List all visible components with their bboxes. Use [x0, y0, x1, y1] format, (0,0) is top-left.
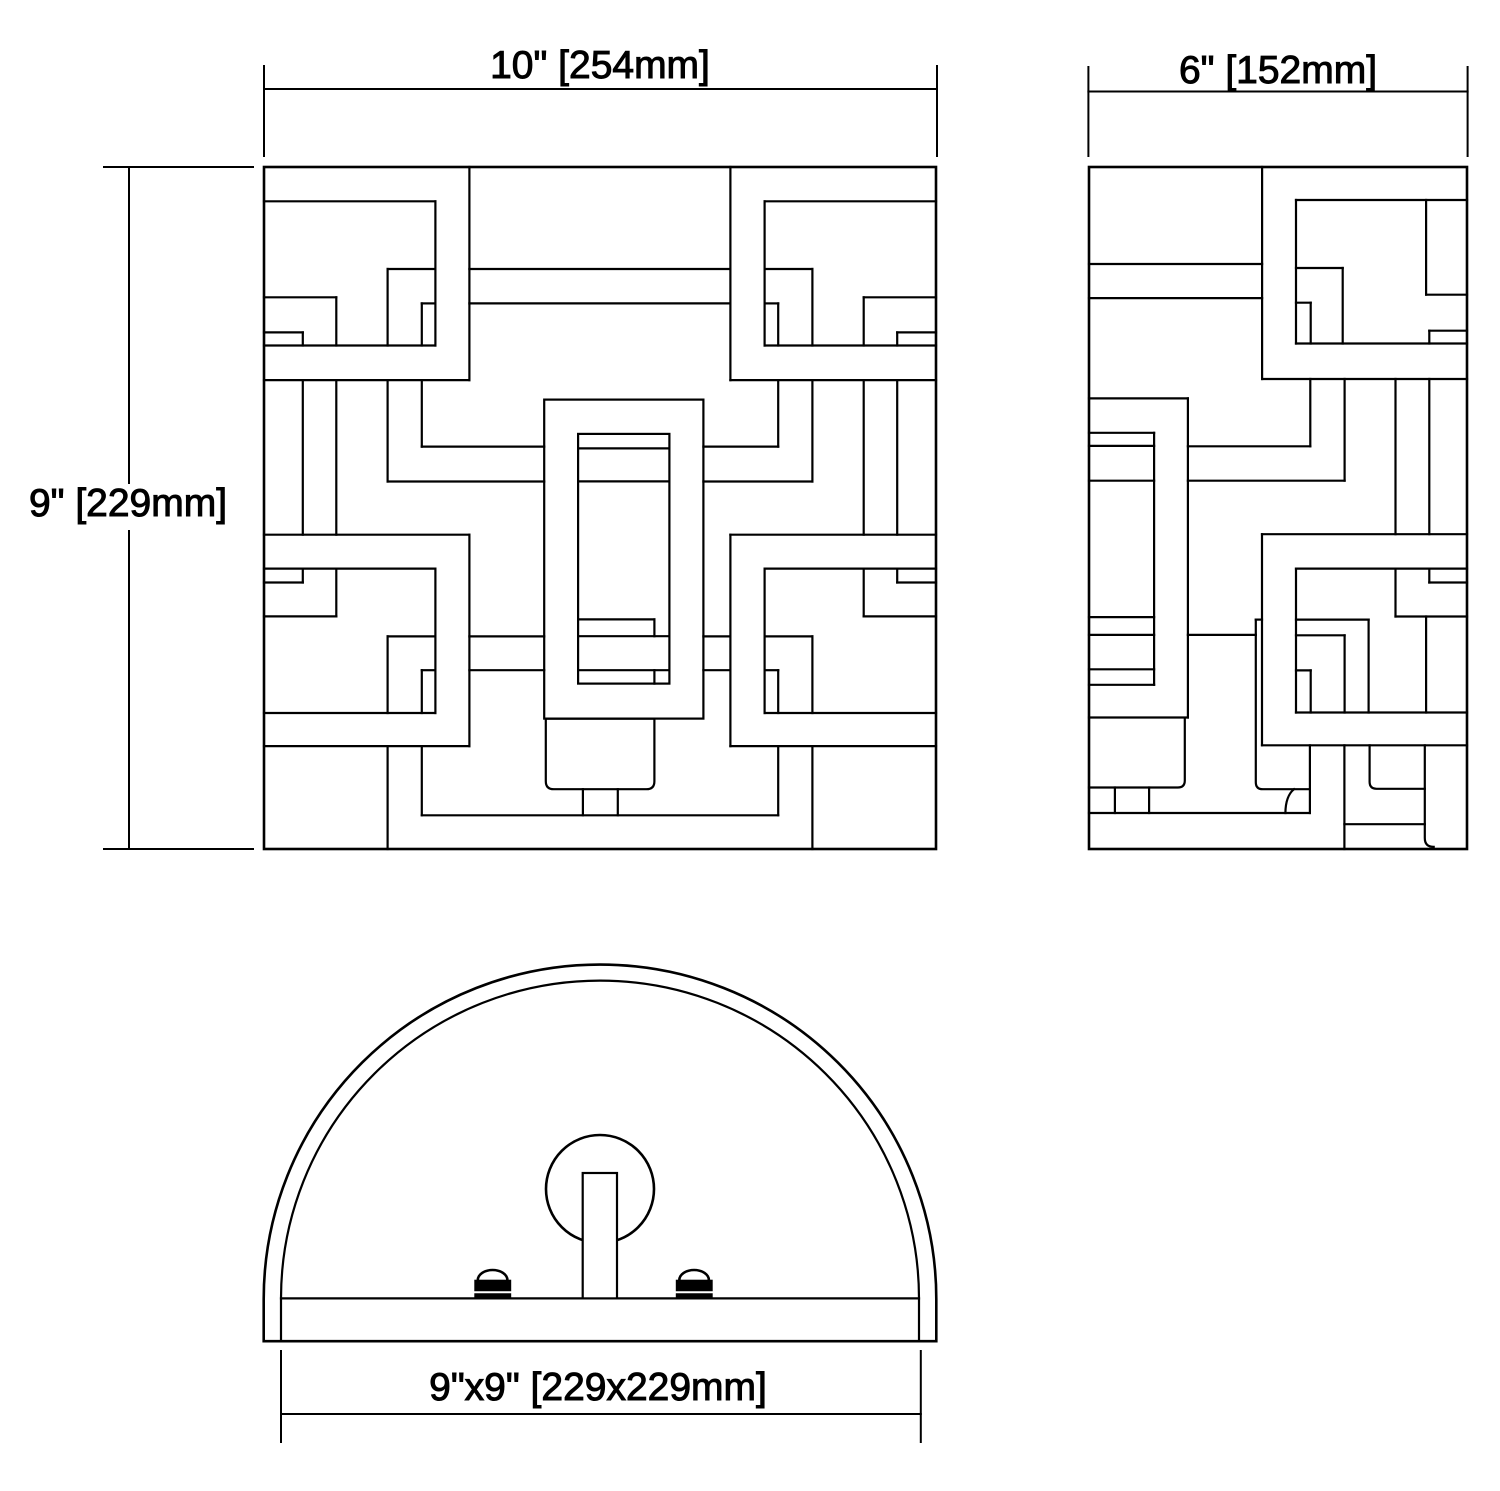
svg-text:9" [229mm]: 9" [229mm]: [29, 482, 227, 525]
svg-text:9"x9" [229x229mm]: 9"x9" [229x229mm]: [429, 1366, 767, 1409]
svg-text:6" [152mm]: 6" [152mm]: [1179, 49, 1377, 92]
svg-text:10" [254mm]: 10" [254mm]: [490, 44, 710, 87]
